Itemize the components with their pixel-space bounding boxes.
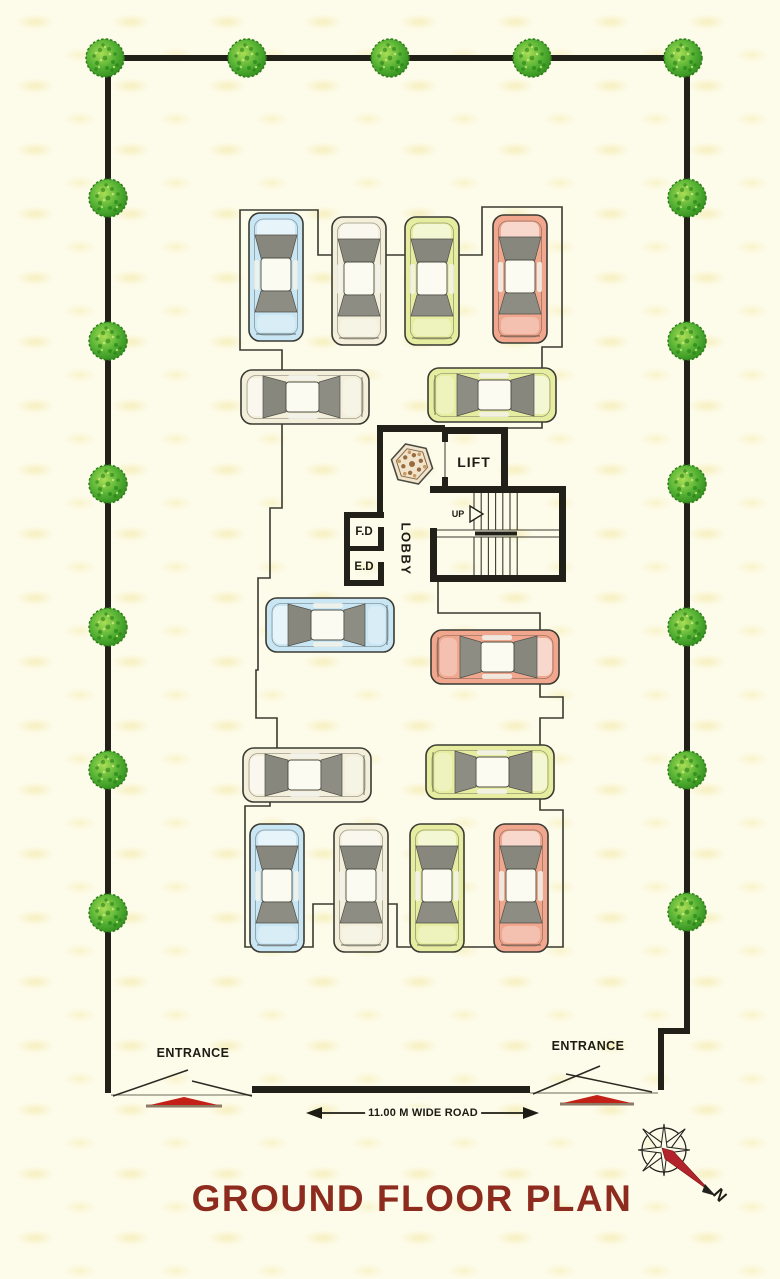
car-bottom-1 xyxy=(250,824,304,952)
lobby-label: LOBBY xyxy=(399,523,414,576)
tree-icon xyxy=(89,465,127,503)
car-mid-1 xyxy=(266,598,394,652)
car-bottom-4 xyxy=(494,824,548,952)
tree-icon xyxy=(89,608,127,646)
floor-plan-drawing xyxy=(0,0,780,1279)
car-row4-1 xyxy=(243,748,371,802)
tree-icon xyxy=(668,179,706,217)
car-top-2 xyxy=(332,217,386,345)
ground-floor-plan: LIFT LOBBY F.D E.D UP ENTRANCE ENTRANCE … xyxy=(0,0,780,1279)
tree-icon xyxy=(668,608,706,646)
tree-icon xyxy=(89,322,127,360)
tree-icon xyxy=(86,39,124,77)
compass-rose xyxy=(622,1108,716,1196)
car-top-4 xyxy=(493,215,547,343)
tree-icon xyxy=(89,751,127,789)
tree-icon xyxy=(668,465,706,503)
entrance-left-label: ENTRANCE xyxy=(157,1046,230,1060)
car-row4-2 xyxy=(426,745,554,799)
car-top-1 xyxy=(249,213,303,341)
tree-icon xyxy=(668,322,706,360)
tree-icon xyxy=(664,39,702,77)
compass-needle xyxy=(662,1148,711,1192)
core-walls xyxy=(344,425,566,586)
entrance-right-label: ENTRANCE xyxy=(552,1039,625,1053)
car-row2-2 xyxy=(428,368,556,422)
lobby-ornament xyxy=(388,442,437,486)
tree-icon xyxy=(371,39,409,77)
tree-icon xyxy=(513,39,551,77)
entrance-sill-lines xyxy=(111,1093,658,1095)
tree-icon xyxy=(668,751,706,789)
page-title: GROUND FLOOR PLAN xyxy=(192,1178,633,1220)
car-mid-2 xyxy=(431,630,559,684)
boundary-trees xyxy=(86,39,706,932)
road-dimension-label: 11.00 M WIDE ROAD xyxy=(365,1107,481,1119)
parked-cars xyxy=(241,213,559,952)
staircase xyxy=(437,493,559,575)
car-bottom-3 xyxy=(410,824,464,952)
lift-label: LIFT xyxy=(457,454,491,470)
tree-icon xyxy=(668,893,706,931)
car-top-3 xyxy=(405,217,459,345)
tree-icon xyxy=(89,179,127,217)
stairs-up-label: UP xyxy=(452,509,465,519)
fire-duct-label: F.D xyxy=(355,526,372,538)
car-bottom-2 xyxy=(334,824,388,952)
elec-duct-label: E.D xyxy=(354,561,373,573)
car-row2-1 xyxy=(241,370,369,424)
entrance-speed-bumps xyxy=(146,1095,634,1106)
tree-icon xyxy=(228,39,266,77)
tree-icon xyxy=(89,894,127,932)
